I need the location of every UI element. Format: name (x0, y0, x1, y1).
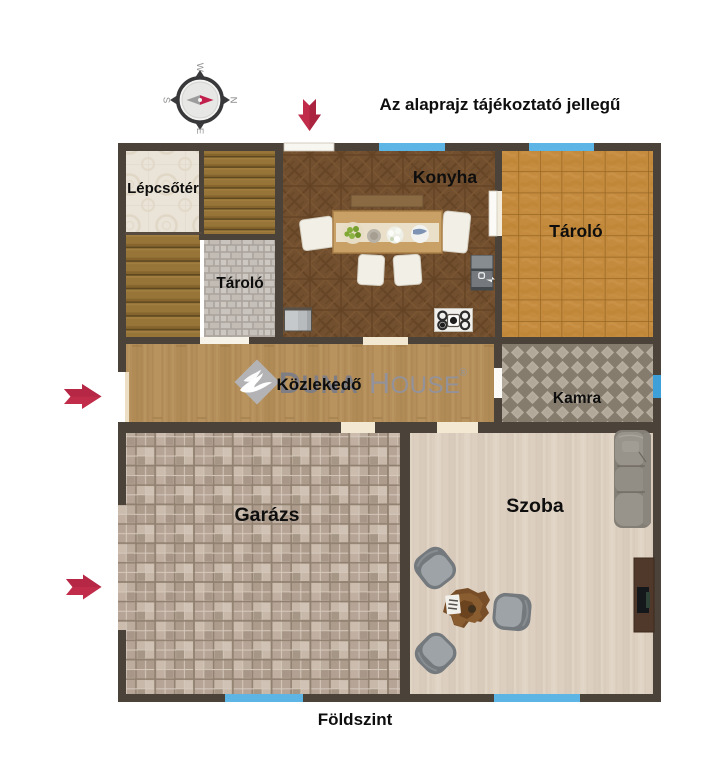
svg-text:Földszint: Földszint (318, 710, 393, 729)
svg-text:E: E (194, 128, 205, 134)
svg-text:HOUSE: HOUSE (369, 368, 460, 400)
svg-text:Tároló: Tároló (216, 275, 263, 292)
svg-text:W: W (194, 63, 205, 72)
svg-text:Tároló: Tároló (549, 221, 602, 241)
svg-text:Szoba: Szoba (506, 495, 564, 517)
svg-text:Lépcsőtér: Lépcsőtér (127, 180, 199, 197)
svg-text:Kamra: Kamra (553, 390, 602, 407)
svg-text:Az alaprajz tájékoztató jelleg: Az alaprajz tájékoztató jellegű (380, 95, 621, 114)
svg-text:Közlekedő: Közlekedő (276, 375, 361, 394)
svg-text:Konyha: Konyha (413, 167, 477, 187)
svg-text:Garázs: Garázs (234, 504, 299, 526)
svg-text:N: N (227, 97, 238, 104)
svg-text:S: S (160, 97, 171, 103)
svg-text:®: ® (459, 367, 467, 379)
